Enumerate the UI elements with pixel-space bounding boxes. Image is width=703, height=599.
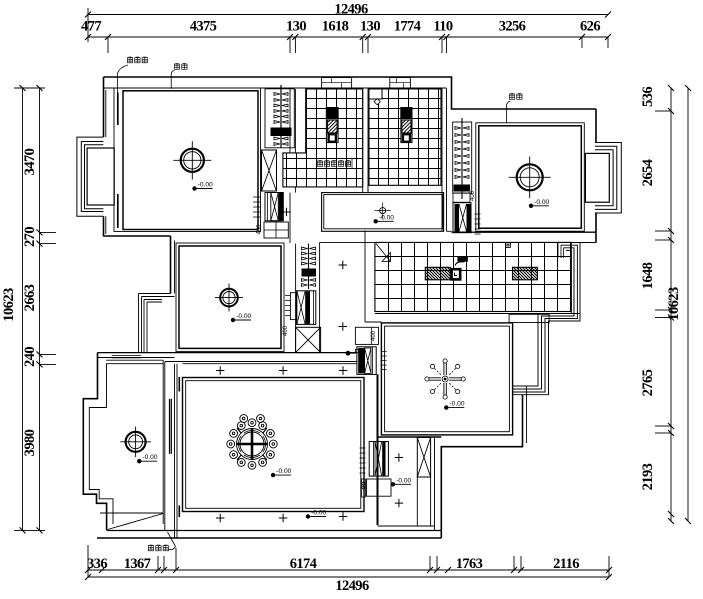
svg-text:2116: 2116 — [553, 556, 579, 572]
svg-text:536: 536 — [640, 87, 656, 107]
svg-text:400: 400 — [371, 330, 377, 341]
svg-text:400: 400 — [283, 325, 289, 336]
svg-text:12496: 12496 — [335, 578, 369, 594]
svg-text:336: 336 — [87, 556, 107, 572]
svg-text:400: 400 — [257, 224, 263, 235]
svg-text:3470: 3470 — [22, 148, 38, 175]
svg-text:626: 626 — [580, 19, 600, 35]
svg-text:2654: 2654 — [640, 159, 656, 186]
svg-text:2193: 2193 — [640, 463, 656, 490]
svg-text:4375: 4375 — [190, 19, 217, 35]
svg-text:10623: 10623 — [1, 288, 17, 322]
svg-text:270: 270 — [22, 227, 38, 247]
svg-text:1774: 1774 — [394, 19, 421, 35]
svg-text:110: 110 — [433, 19, 452, 35]
svg-text:1763: 1763 — [456, 556, 483, 572]
svg-text:2663: 2663 — [22, 284, 38, 311]
svg-text:3980: 3980 — [22, 429, 38, 456]
svg-text:1618: 1618 — [322, 19, 349, 35]
svg-text:1367: 1367 — [124, 556, 151, 572]
svg-text:400: 400 — [470, 190, 476, 201]
svg-text:130: 130 — [286, 19, 306, 35]
svg-text:2765: 2765 — [640, 369, 656, 396]
svg-text:477: 477 — [81, 19, 101, 35]
svg-text:240: 240 — [22, 347, 38, 367]
svg-text:130: 130 — [360, 19, 380, 35]
svg-text:6174: 6174 — [290, 556, 317, 572]
svg-text:3256: 3256 — [499, 19, 526, 35]
svg-text:1648: 1648 — [640, 262, 656, 289]
svg-text:12496: 12496 — [334, 2, 368, 18]
